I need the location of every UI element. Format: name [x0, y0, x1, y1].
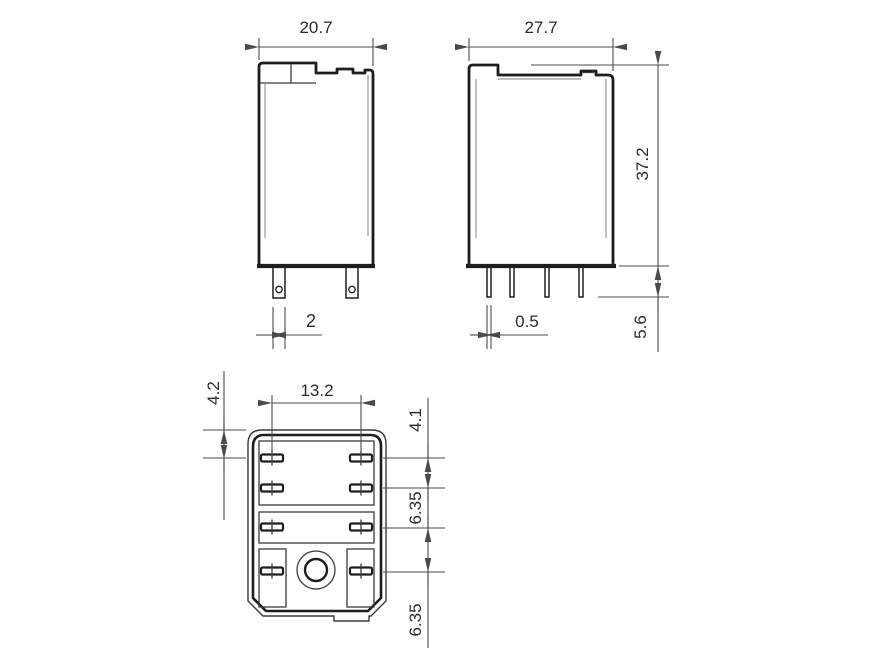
side-pin-2: [510, 266, 514, 297]
side-view: [466, 65, 616, 297]
front-pin-left-hole: [276, 286, 282, 292]
relay-dimension-drawing: 20.7 2 27.7 0.5: [0, 0, 869, 652]
drawing-svg: 20.7 2 27.7 0.5: [0, 0, 869, 652]
dim-label-side-pin-length: 5.6: [631, 315, 650, 339]
side-body-outline: [469, 65, 613, 266]
dim-side-pin-thickness: 0.5: [470, 305, 548, 349]
bottom-view: [248, 430, 386, 621]
dim-label-bottom-row2-to-row3: 6.35: [406, 491, 425, 524]
dim-label-bottom-column-spacing: 13.2: [300, 381, 333, 400]
dim-label-side-pin-thickness: 0.5: [515, 312, 539, 331]
dim-side-width: 27.7: [469, 18, 613, 71]
dim-label-front-width: 20.7: [299, 18, 332, 37]
dim-label-bottom-row1-to-row2: 4.1: [406, 408, 425, 432]
front-body-outline: [259, 63, 373, 266]
dim-label-front-pin-width: 2: [306, 311, 316, 331]
dim-front-width: 20.7: [259, 18, 373, 66]
front-pin-right-hole: [349, 286, 355, 292]
side-pin-3: [545, 266, 549, 297]
dim-label-side-height: 37.2: [633, 147, 652, 180]
dim-label-side-width: 27.7: [524, 18, 557, 37]
front-view: [257, 63, 375, 298]
side-pin-4: [579, 266, 583, 297]
dim-bottom-row-chain: 4.1 6.35 6.35: [383, 398, 445, 648]
dim-bottom-edge-to-row1: 4.2: [203, 371, 246, 520]
side-pin-1: [487, 266, 491, 297]
dim-label-bottom-row3-to-row4: 6.35: [406, 603, 425, 636]
dim-label-bottom-edge-to-row1: 4.2: [204, 381, 223, 405]
dim-front-pin-width: 2: [256, 307, 322, 349]
